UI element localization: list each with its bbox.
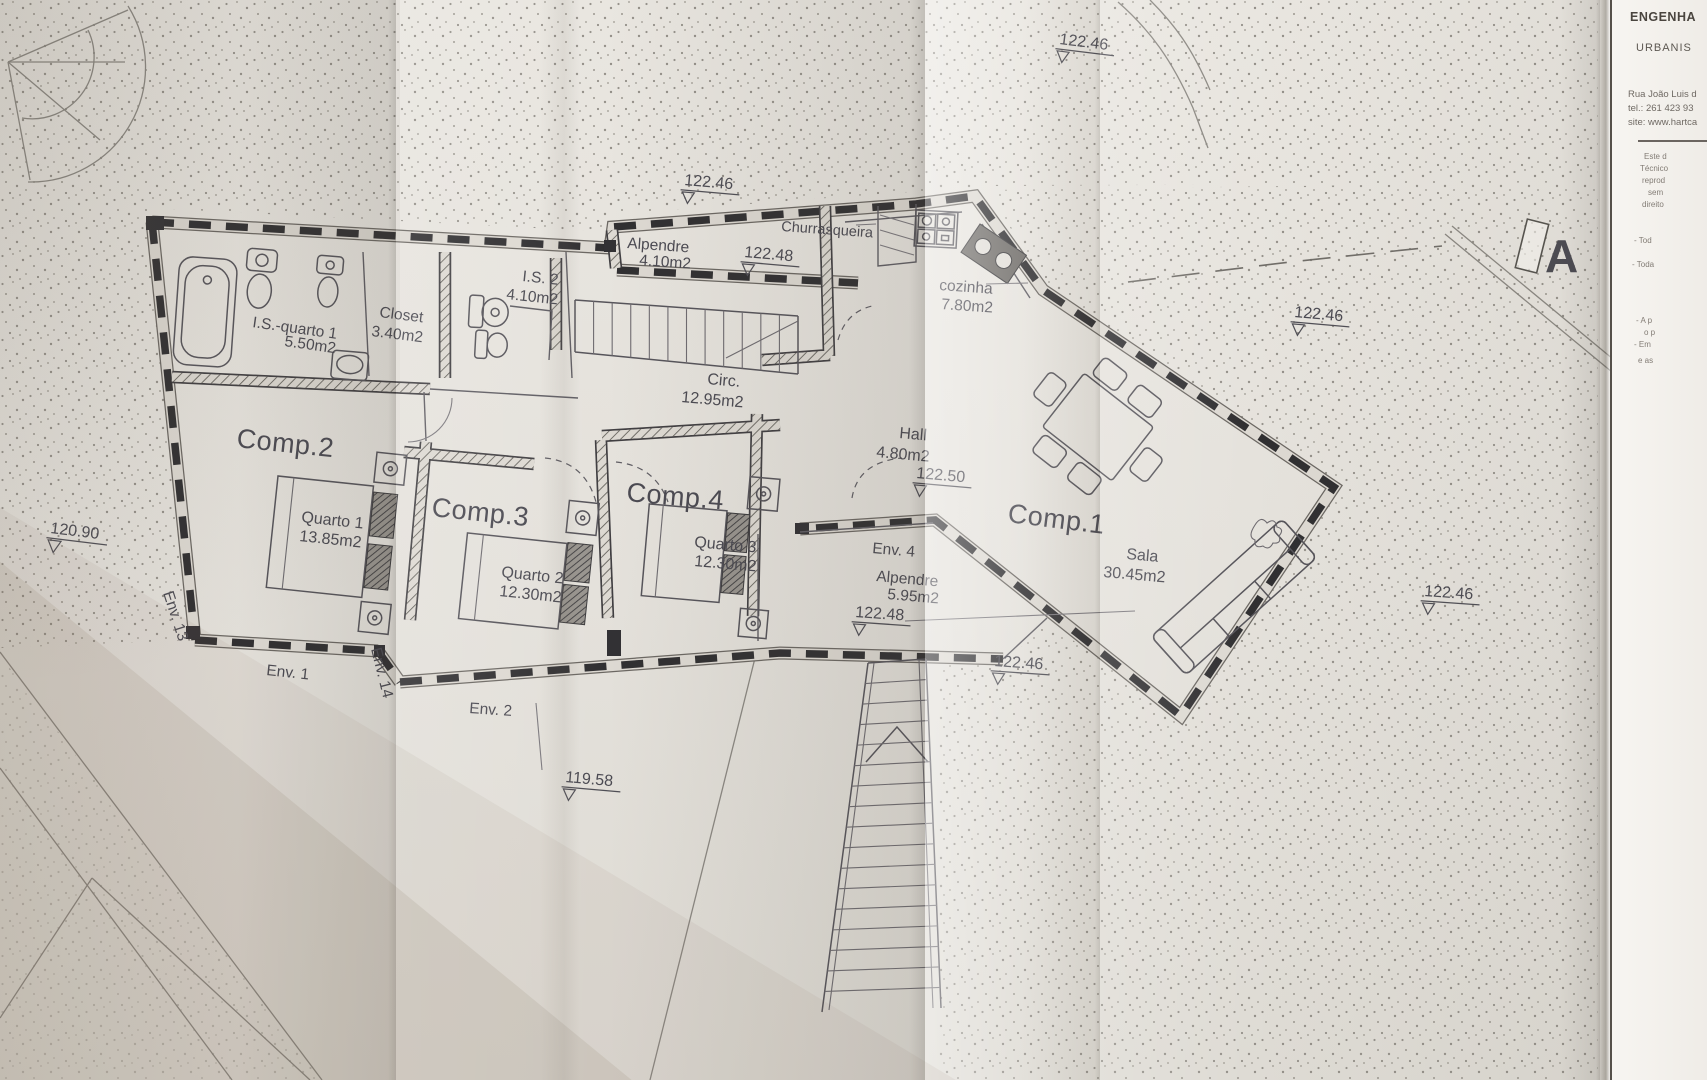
elevation-marker: 122.50 bbox=[911, 465, 972, 501]
room-name-is2: I.S. 2 bbox=[522, 268, 560, 289]
room-name-circ: Circ. bbox=[707, 371, 741, 391]
company-contact: Rua João Luis d tel.: 261 423 93 site: w… bbox=[1628, 88, 1697, 130]
note-line: - A p bbox=[1636, 316, 1652, 325]
room-area-alpendre-env4: 5.95m2 bbox=[887, 586, 940, 607]
stipple-texture bbox=[0, 0, 1598, 1080]
company-name: ENGENHA bbox=[1630, 10, 1696, 24]
elevation-marker: 119.58 bbox=[560, 769, 621, 805]
toilet-icon bbox=[468, 295, 509, 329]
section-marker-label: A bbox=[1545, 230, 1578, 282]
note-line: direito bbox=[1642, 200, 1664, 209]
room-area-circ: 12.95m2 bbox=[681, 389, 745, 411]
svg-text:122.48: 122.48 bbox=[855, 604, 905, 624]
bidet-icon bbox=[475, 330, 508, 360]
stairs-exterior bbox=[822, 659, 941, 1012]
room-area-alpendre-north: 4.10m2 bbox=[639, 252, 692, 273]
room-area-sala: 30.45m2 bbox=[1103, 564, 1167, 586]
note-line: - Tod bbox=[1634, 236, 1652, 245]
note-line: o p bbox=[1644, 328, 1655, 337]
note-line: Técnico bbox=[1640, 164, 1668, 173]
churrasqueira-hatch bbox=[880, 215, 914, 255]
toilet-icon bbox=[243, 248, 278, 309]
note-line: - Toda bbox=[1632, 260, 1654, 269]
svg-text:122.46: 122.46 bbox=[994, 653, 1044, 673]
room-area-quarto3: 12.30m2 bbox=[694, 553, 758, 575]
note-line: reprod bbox=[1642, 176, 1665, 185]
room-area-quarto1: 13.85m2 bbox=[299, 528, 363, 551]
bathtub-icon bbox=[172, 256, 237, 368]
room-name-hall: Hall bbox=[899, 425, 928, 444]
note-line: e as bbox=[1638, 356, 1653, 365]
room-label-comp2: Comp.2 bbox=[235, 423, 335, 463]
title-block: ENGENHA URBANIS Rua João Luis d tel.: 26… bbox=[1610, 0, 1707, 1080]
opening-label-env2: Env. 2 bbox=[469, 700, 513, 720]
opening-label-env4: Env. 4 bbox=[872, 540, 916, 561]
room-name-sala: Sala bbox=[1126, 546, 1159, 566]
room-label-comp4: Comp.4 bbox=[625, 477, 725, 515]
note-line: sem bbox=[1648, 188, 1663, 197]
floor-plan-photo: A bbox=[0, 0, 1707, 1080]
room-name-churrasqueira: Churrasqueira bbox=[781, 219, 875, 241]
room-name-closet: Closet bbox=[379, 304, 425, 326]
room-area-quarto2: 12.30m2 bbox=[499, 583, 563, 606]
company-subtitle: URBANIS bbox=[1636, 42, 1692, 54]
company-phone: tel.: 261 423 93 bbox=[1628, 102, 1697, 116]
note-line: - Em bbox=[1634, 340, 1651, 349]
room-area-closet: 3.40m2 bbox=[371, 323, 424, 346]
bidet-icon bbox=[314, 255, 344, 308]
room-area-hall: 4.80m2 bbox=[876, 444, 931, 466]
room-area-cozinha: 7.80m2 bbox=[941, 296, 994, 317]
room-label-comp3: Comp.3 bbox=[430, 492, 530, 532]
opening-label-env1: Env. 1 bbox=[266, 662, 310, 683]
room-name-cozinha: cozinha bbox=[939, 277, 994, 298]
company-website: site: www.hartca bbox=[1628, 116, 1697, 130]
note-line: Este d bbox=[1644, 152, 1667, 161]
floor-plan-drawing: A bbox=[0, 0, 1707, 1080]
company-address: Rua João Luis d bbox=[1628, 88, 1697, 102]
svg-text:122.46: 122.46 bbox=[1424, 583, 1474, 603]
divider bbox=[1638, 140, 1707, 142]
washbasin-icon bbox=[331, 350, 369, 381]
elevation-marker: 122.48 bbox=[851, 604, 912, 639]
room-label-comp1: Comp.1 bbox=[1006, 498, 1106, 540]
